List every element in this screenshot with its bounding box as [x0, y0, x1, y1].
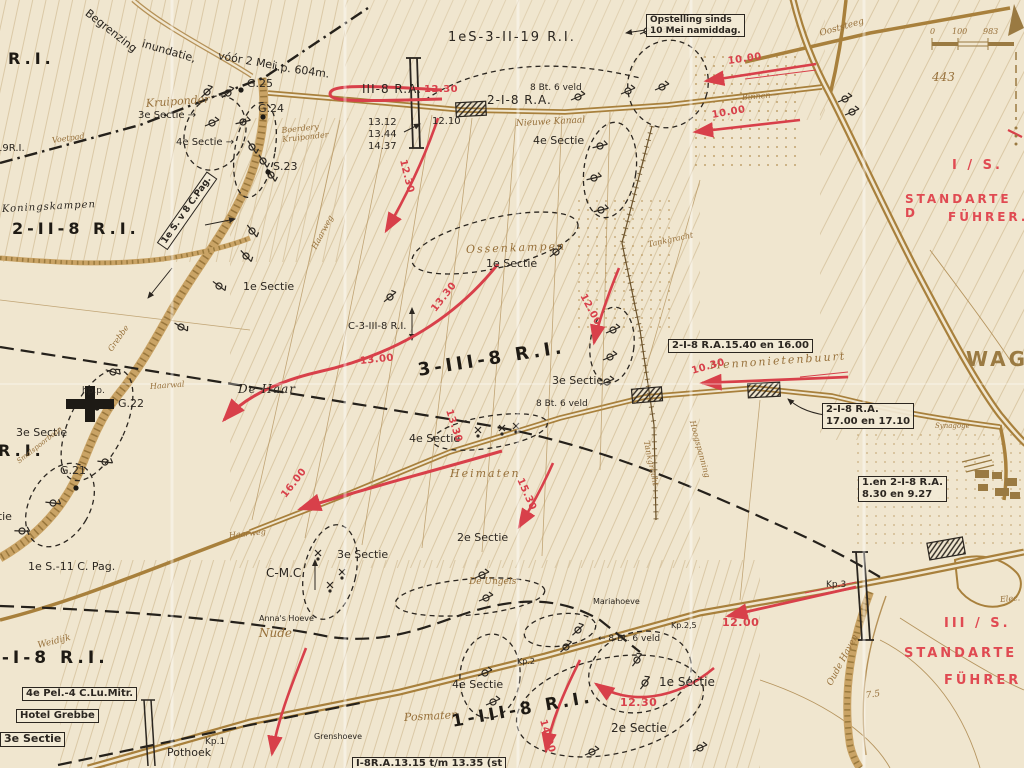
sectie1-bottom: 1e Sectie — [659, 675, 715, 689]
height-75: 7.5 — [865, 689, 881, 702]
bt8-bottom: ← 8 Bt. 6 veld — [598, 634, 660, 645]
grenshoeve: Grenshoeve — [314, 732, 362, 741]
sectie3-kruiponder: 3e Sectie → — [138, 110, 196, 122]
sectie4-kruiponder: 4e Sectie → — [176, 137, 234, 149]
time-1030: 10.30 — [690, 357, 726, 378]
unit-3-3-8-ri: 3-III-8 R.I. — [416, 337, 566, 381]
unit-3-8-ra: III-8 R.A. — [362, 82, 422, 96]
begrenzing-1: Begrenzing — [82, 7, 139, 55]
note-1700: 2-I-8 R.A. 17.00 en 17.10 — [822, 403, 914, 429]
pag-8-box: 1e S. v 8 C.Pag. — [157, 171, 217, 250]
s23: S.23 — [273, 161, 297, 174]
de-haar: De Haar — [238, 382, 296, 396]
c-3-3-8-ri: C-3-III-8 R.I. — [348, 321, 406, 333]
time-1300: 13.00 — [359, 352, 394, 367]
unit-i-s-red: I / S. — [952, 158, 1003, 173]
elec: Elec. — [1000, 593, 1021, 604]
bt8-top: 8 Bt. 6 veld — [530, 83, 582, 94]
bt8-mid: 8 Bt. 6 veld — [536, 399, 588, 410]
fuhrer-south: FÜHRER — [944, 673, 1021, 688]
time-1530: 15.30 — [514, 476, 539, 512]
tankgracht-south: Tankgracht — [641, 440, 660, 487]
scale-200: 983 — [983, 27, 998, 36]
time-1000-a: 10.00 — [727, 51, 762, 67]
tankgracht-north: Tankgracht — [647, 231, 694, 250]
time-1230-c: 12.30 — [620, 697, 657, 710]
time-1344: 13.44 — [368, 129, 397, 141]
hotel-grebbe: Hotel Grebbe — [16, 709, 99, 723]
begrenzing-3: vóór 2 Mei, — [217, 50, 280, 73]
sectie3-cmc: 3e Sectie — [337, 549, 388, 562]
binnen: Binnen— — [742, 90, 779, 103]
time-1200-b: 12.00 — [722, 617, 759, 630]
grebbe-river: Grebbe — [106, 323, 131, 353]
ooststeeg: Ooststeeg — [819, 17, 866, 40]
sectie-partial-left: Sectie — [0, 511, 12, 524]
ossenkampen: Ossenkampen — [466, 241, 567, 257]
kruiponder: Kruiponder — [146, 94, 210, 111]
map-labels-layer: Begrenzinginundatie,vóór 2 Mei,i.p. 604m… — [0, 0, 1024, 768]
unit-1-1-8-ri: 1-I-8 R.I. — [0, 648, 109, 668]
sectie4-bottom: 4e Sectie — [452, 679, 503, 692]
time-1437: 14.37 — [368, 141, 397, 153]
unit-2-1-8-ra-road: 2-I-8 R.A. — [487, 93, 552, 107]
annas-hoeve: Anna's Hoeve — [259, 614, 314, 623]
unit-2-2-8-ri: 2-II-8 R.I. — [12, 220, 140, 239]
kp25: Kp.2,5 — [671, 621, 697, 630]
sectie2-bottom: 2e Sectie — [611, 721, 667, 735]
pothoek: Pothoek — [167, 747, 211, 760]
time-1210: 12.10 — [432, 116, 461, 128]
begrenzing-2: inundatie, — [140, 38, 197, 66]
sectie2-mid: 2e Sectie — [457, 532, 508, 545]
haarweg-north: Haarweg — [310, 214, 336, 251]
wageningen: WAGEN — [966, 348, 1024, 372]
height-443: 443 — [932, 70, 955, 84]
sectie3-mid: 3e Sectie — [552, 375, 603, 388]
oude-haven: Oude Haven — [825, 633, 861, 688]
g24: G.24 — [258, 103, 284, 116]
g21: G.21 — [60, 465, 86, 478]
standarte-south: STANDARTE — [904, 646, 1017, 661]
note-i8ra-bottom: I-8R.A.13.15 t/m 13.35 (st — [352, 757, 506, 768]
unit-1s-3-2-19-ri: 1eS-3-II-19 R.I. — [448, 30, 576, 45]
time-1330-a: 13.30 — [429, 280, 459, 314]
time-1400: 14.00 — [536, 718, 557, 754]
time-1230-a: 12.30 — [424, 84, 458, 96]
haarweg-south: Haarweg — [229, 527, 267, 540]
heimaten: Heimaten — [450, 468, 521, 481]
sectie3-bottomleft: 3e Sectie — [0, 732, 65, 747]
scale-100: 100 — [952, 27, 967, 36]
unit-19ri: 19R.I. — [0, 143, 25, 155]
kp3: Kp.3 — [826, 580, 846, 591]
note-1540: 2-I-8 R.A.15.40 en 16.00 — [668, 339, 813, 353]
time-1000-b: 10.00 — [711, 104, 747, 122]
mariahoeve: Mariahoeve — [593, 597, 640, 606]
sectie1-dike: 1e Sectie — [243, 281, 294, 294]
sectie1-ossenkampen: 1e Sectie — [486, 258, 537, 271]
map-root: Begrenzinginundatie,vóór 2 Mei,i.p. 604m… — [0, 0, 1024, 768]
time-1200-mid: 12.00 — [577, 292, 603, 328]
unit-iii-s-red: III / S. — [944, 616, 1011, 631]
boerdery: Boerdery Kruiponder — [281, 121, 329, 145]
begrenzing-4: i.p. 604m. — [273, 61, 330, 82]
mennonietenbuurt: Mennonietenbuurt — [710, 350, 847, 372]
hoogspanning: Hoogspanning — [687, 419, 711, 478]
time-1600: 16.00 — [279, 466, 309, 500]
time-1230-b: 12.30 — [396, 158, 416, 194]
g25: G.25 — [247, 78, 273, 91]
scale-0: 0 — [930, 27, 935, 36]
nieuwe-kanaal: Nieuwe Kanaal — [516, 115, 586, 129]
unit-1-3-8-ri: 1-III-8 R.I. — [450, 687, 595, 732]
hpp: hp.p. — [82, 386, 105, 397]
unit-ri-topleft: R.I. — [8, 50, 55, 69]
voetpad: Voetpad — [51, 131, 85, 145]
koningskampen: Koningskampen — [2, 199, 97, 216]
pag-11: 1e S.-11 C. Pag. — [28, 561, 115, 574]
de-engels: De Ungels — [469, 577, 516, 588]
note-830: 1.en 2-I-8 R.A. 8.30 en 9.27 — [858, 476, 947, 502]
opstelling-note: Opstelling sinds 10 Mei namiddag. — [646, 14, 745, 37]
synagoge: Synagoge — [935, 422, 970, 430]
note-pel: 4e Pel.-4 C.Lu.Mitr. — [22, 687, 137, 701]
haarwal: Haarwal — [150, 380, 185, 392]
sectie4-top: 4e Sectie — [533, 135, 584, 148]
fuhrer-north: FÜHRER. — [948, 210, 1024, 224]
kp2: Kp.2 — [517, 657, 535, 666]
c-mc: C-M.C. — [266, 566, 305, 580]
time-1312: 13.12 — [368, 117, 397, 129]
g22: G.22 — [118, 398, 144, 411]
nude: Nude — [259, 626, 292, 640]
